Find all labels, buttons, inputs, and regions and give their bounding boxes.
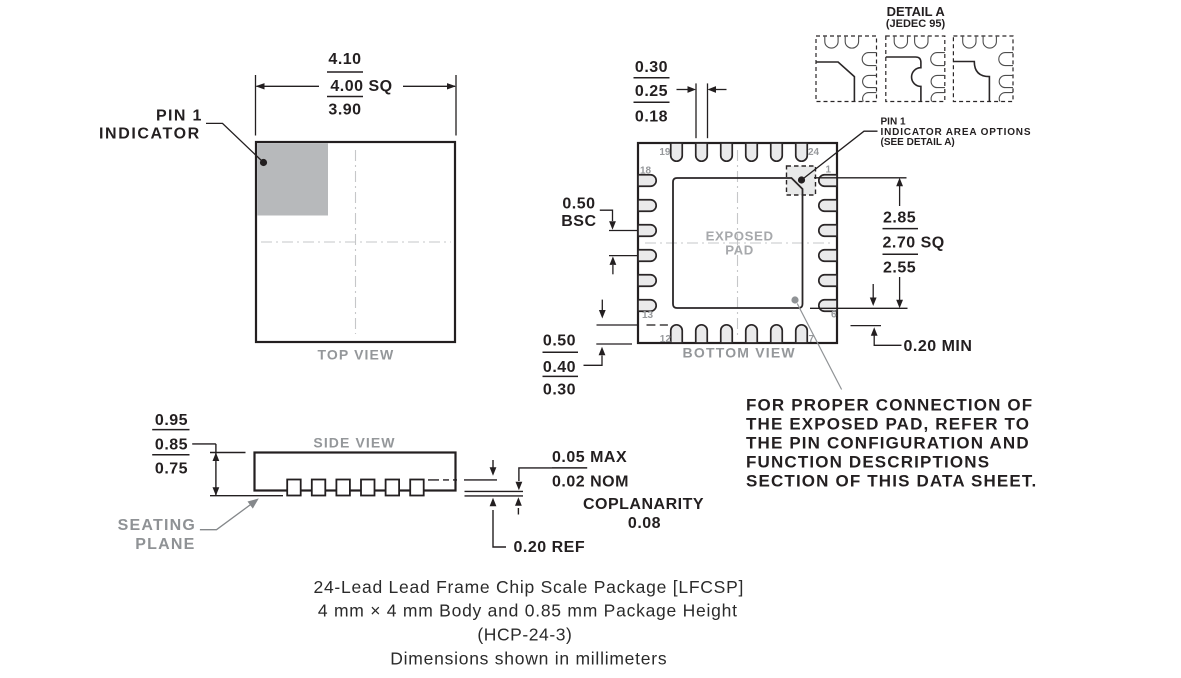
svg-text:24: 24 xyxy=(808,147,820,158)
svg-text:0.18: 0.18 xyxy=(635,109,668,126)
svg-text:0.40: 0.40 xyxy=(543,359,576,376)
svg-text:0.30: 0.30 xyxy=(543,382,576,399)
svg-text:FOR PROPER CONNECTION OF: FOR PROPER CONNECTION OF xyxy=(746,395,1033,414)
svg-text:TOP VIEW: TOP VIEW xyxy=(318,346,395,362)
svg-text:6: 6 xyxy=(831,310,837,321)
svg-text:0.20 MIN: 0.20 MIN xyxy=(904,338,973,355)
svg-text:0.02 NOM: 0.02 NOM xyxy=(552,473,629,490)
svg-text:EXPOSED: EXPOSED xyxy=(706,228,774,243)
svg-text:2.55: 2.55 xyxy=(883,260,916,277)
svg-text:(JEDEC 95): (JEDEC 95) xyxy=(886,18,946,30)
svg-text:0.85: 0.85 xyxy=(155,437,188,454)
svg-text:0.30: 0.30 xyxy=(635,59,668,76)
svg-text:DETAIL A: DETAIL A xyxy=(887,4,946,19)
svg-text:0.75: 0.75 xyxy=(155,460,188,477)
svg-text:0.95: 0.95 xyxy=(155,412,188,429)
svg-text:0.20 REF: 0.20 REF xyxy=(514,539,586,556)
svg-text:PIN 1: PIN 1 xyxy=(156,108,203,125)
svg-text:0.50: 0.50 xyxy=(562,195,595,212)
svg-text:SIDE VIEW: SIDE VIEW xyxy=(313,434,395,450)
svg-text:0.08: 0.08 xyxy=(628,515,661,532)
svg-text:19: 19 xyxy=(659,147,671,158)
svg-text:2.70 SQ: 2.70 SQ xyxy=(883,234,945,251)
svg-text:BSC: BSC xyxy=(561,213,596,230)
svg-text:18: 18 xyxy=(640,166,652,177)
svg-text:3.90: 3.90 xyxy=(328,102,361,119)
svg-text:THE EXPOSED PAD, REFER TO: THE EXPOSED PAD, REFER TO xyxy=(746,414,1030,433)
svg-text:0.50: 0.50 xyxy=(543,332,576,349)
svg-text:BOTTOM VIEW: BOTTOM VIEW xyxy=(683,345,796,361)
svg-text:PAD: PAD xyxy=(725,243,754,258)
svg-text:COPLANARITY: COPLANARITY xyxy=(583,496,704,513)
svg-text:4.00 SQ: 4.00 SQ xyxy=(330,78,392,95)
svg-text:SECTION OF THIS DATA SHEET.: SECTION OF THIS DATA SHEET. xyxy=(746,472,1037,491)
svg-text:(HCP-24-3): (HCP-24-3) xyxy=(477,625,572,645)
svg-text:SEATING: SEATING xyxy=(118,517,196,534)
svg-text:0.25: 0.25 xyxy=(635,83,668,100)
svg-text:24-Lead Lead Frame Chip Scale: 24-Lead Lead Frame Chip Scale Package [L… xyxy=(313,577,744,597)
svg-text:THE PIN CONFIGURATION AND: THE PIN CONFIGURATION AND xyxy=(746,433,1030,452)
svg-text:2.85: 2.85 xyxy=(883,210,916,227)
svg-text:Dimensions shown in millimeter: Dimensions shown in millimeters xyxy=(390,649,667,669)
svg-text:(SEE DETAIL A): (SEE DETAIL A) xyxy=(881,137,955,148)
svg-text:12: 12 xyxy=(660,334,672,345)
svg-text:4.10: 4.10 xyxy=(328,51,361,68)
svg-text:0.05 MAX: 0.05 MAX xyxy=(552,449,627,466)
svg-text:PLANE: PLANE xyxy=(135,536,195,553)
svg-text:1: 1 xyxy=(825,165,831,176)
svg-text:INDICATOR: INDICATOR xyxy=(99,126,201,143)
svg-text:FUNCTION DESCRIPTIONS: FUNCTION DESCRIPTIONS xyxy=(746,453,990,472)
svg-text:13: 13 xyxy=(642,310,654,321)
svg-text:4 mm × 4 mm Body and 0.85 mm P: 4 mm × 4 mm Body and 0.85 mm Package Hei… xyxy=(318,601,738,621)
